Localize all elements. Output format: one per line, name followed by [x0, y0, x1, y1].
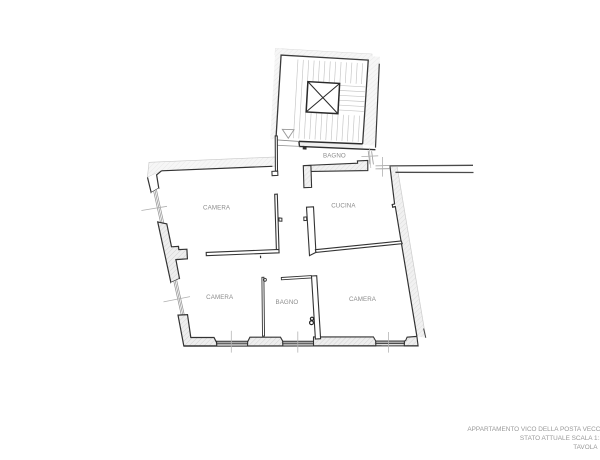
svg-text:TAVOLA: TAVOLA: [573, 444, 598, 451]
svg-text:STATO ATTUALE SCALA 1:100: STATO ATTUALE SCALA 1:100: [520, 435, 600, 442]
svg-text:CAMERA: CAMERA: [203, 205, 231, 212]
svg-text:CAMERA: CAMERA: [206, 294, 234, 301]
svg-text:CUCINA: CUCINA: [331, 203, 356, 210]
svg-text:APPARTAMENTO VICO DELLA POSTA: APPARTAMENTO VICO DELLA POSTA VECCHIA: [467, 426, 600, 433]
svg-text:BAGNO: BAGNO: [275, 299, 298, 306]
svg-text:CAMERA: CAMERA: [349, 296, 377, 303]
svg-text:BAGNO: BAGNO: [323, 152, 346, 159]
